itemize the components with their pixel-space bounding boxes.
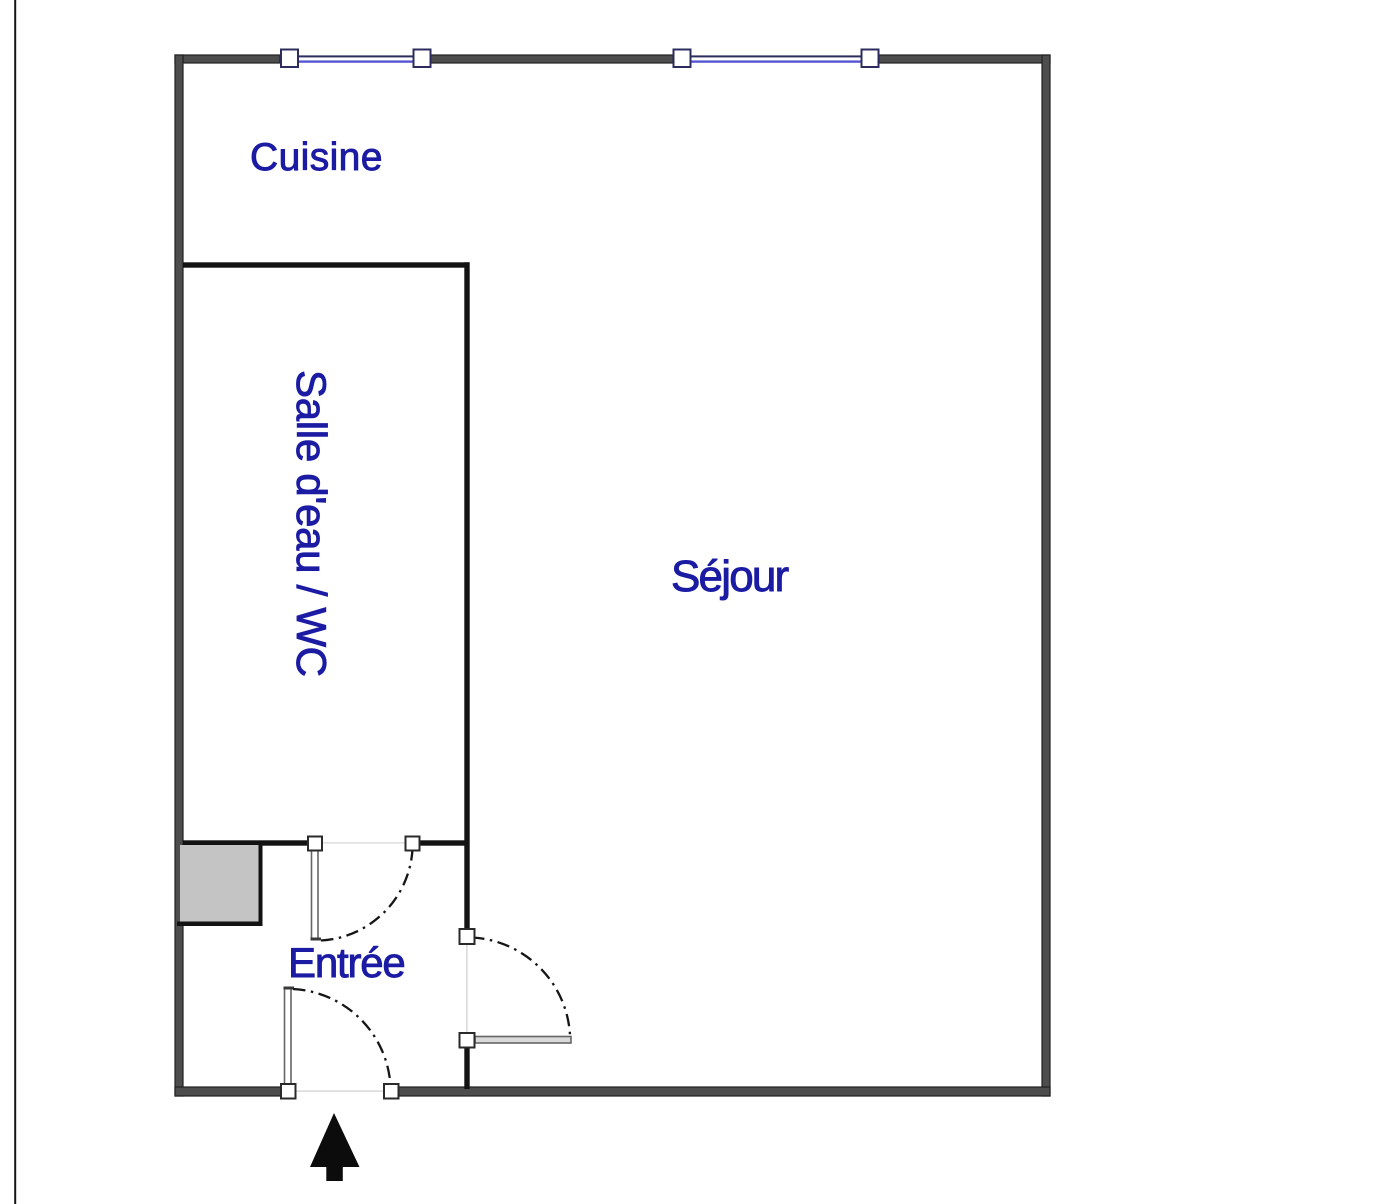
svg-text:Entrée: Entrée [288, 939, 405, 986]
svg-text:Séjour: Séjour [671, 552, 789, 601]
svg-text:Cuisine: Cuisine [250, 136, 383, 179]
svg-text:Salle d'eau / WC: Salle d'eau / WC [288, 370, 335, 677]
